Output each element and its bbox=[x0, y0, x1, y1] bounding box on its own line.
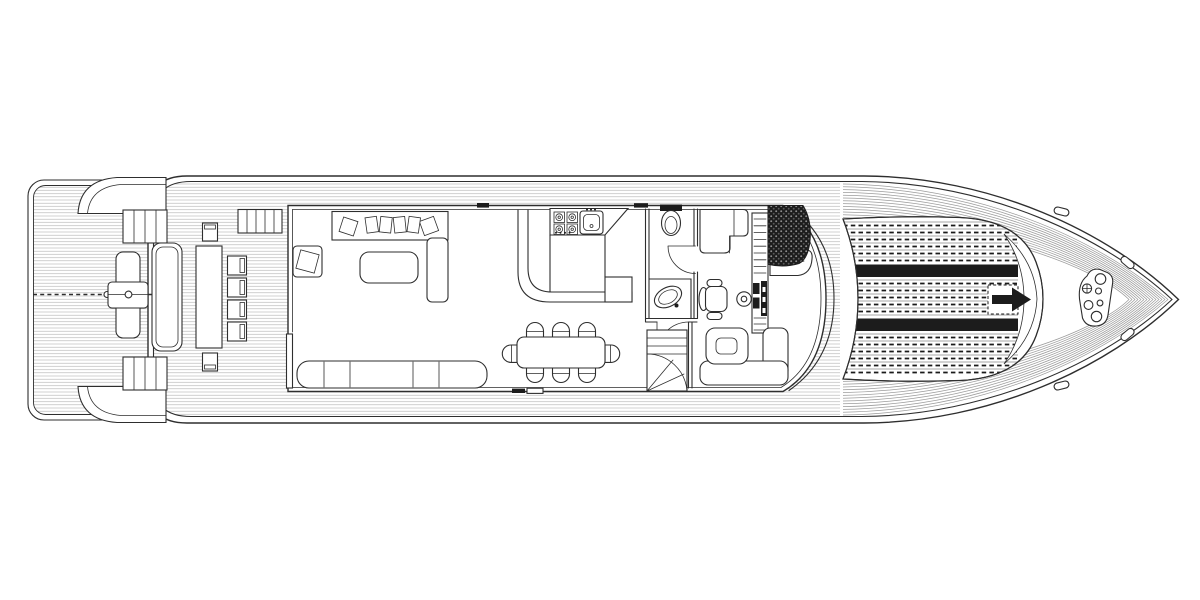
lower-deck-stairs bbox=[647, 330, 687, 391]
dinette-table bbox=[706, 328, 748, 364]
cleat-icon bbox=[1053, 206, 1069, 216]
flybridge-stairs bbox=[768, 206, 812, 276]
door-sill-bottom bbox=[527, 388, 543, 393]
coffee-table bbox=[360, 252, 418, 283]
toilet-icon bbox=[660, 205, 682, 236]
passerelle-pivot-icon bbox=[125, 291, 132, 298]
dinette-bench-bottom bbox=[700, 361, 788, 385]
dining-chair-right bbox=[605, 345, 620, 362]
dining-table bbox=[517, 337, 605, 368]
aft-table bbox=[196, 246, 222, 348]
pilothouse-dinette bbox=[700, 328, 788, 385]
door-marker-bottom bbox=[512, 389, 525, 393]
dining-chairs-top bbox=[527, 323, 596, 338]
sink-icon bbox=[580, 210, 603, 235]
flybridge-stairs-dark-wedge bbox=[768, 206, 810, 267]
door-marker-top-2 bbox=[634, 203, 648, 207]
salon-bench-sofa bbox=[297, 361, 487, 388]
dining-chair-left bbox=[502, 345, 517, 362]
salon-sofa-chaise bbox=[427, 238, 448, 302]
yacht-deck-plan-figure bbox=[0, 0, 1200, 600]
transom-bench bbox=[152, 243, 182, 351]
helm-console bbox=[752, 213, 768, 333]
aft-side-steps bbox=[238, 210, 282, 234]
aft-sliding-door bbox=[287, 334, 293, 388]
door-marker-top-1 bbox=[477, 203, 489, 208]
arrow-shaft bbox=[992, 295, 1012, 304]
galley-end-cabinet bbox=[605, 277, 632, 302]
dining-chairs-bottom bbox=[527, 368, 596, 383]
cleat-icon bbox=[1053, 380, 1069, 390]
deck-plan-svg bbox=[0, 0, 1200, 600]
